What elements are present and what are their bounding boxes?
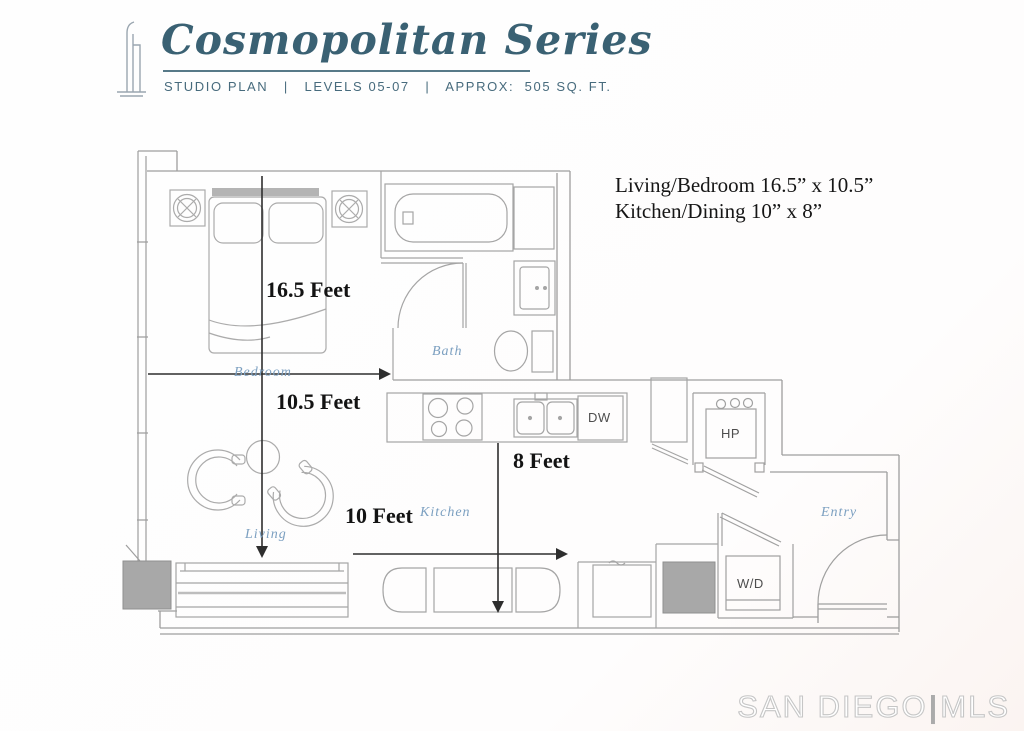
dim-kitchen-depth: 8 Feet: [513, 448, 570, 474]
dim-kitchen-width: 10 Feet: [345, 503, 413, 529]
column-left: [123, 561, 171, 609]
building-icon: [117, 22, 146, 96]
armchair-left: [188, 450, 245, 510]
column-right: [663, 562, 715, 613]
window-wall: [126, 151, 148, 561]
room-label-bedroom: Bedroom: [234, 365, 292, 381]
room-label-entry: Entry: [821, 505, 857, 521]
bath-wall-door-header: [381, 258, 463, 263]
plan-subtitle: STUDIO PLAN | LEVELS 05-07 | APPROX: 505…: [164, 79, 612, 94]
bathtub: [385, 184, 513, 251]
room-label-bath: Bath: [432, 344, 462, 360]
living-furniture: [188, 441, 346, 539]
bathroom: [381, 171, 555, 380]
brand-underline: [163, 70, 530, 72]
watermark-org: MLS: [940, 689, 1010, 724]
arrow-kitchen-width: [353, 548, 568, 560]
bath-closet: [514, 187, 554, 249]
columns: [123, 561, 715, 613]
wd-closet: [718, 513, 793, 618]
watermark-city: SAN DIEGO: [737, 689, 927, 724]
nightstand-right: [332, 191, 367, 227]
nightstand-left: [170, 190, 205, 226]
round-table: [247, 441, 280, 474]
stove: [423, 394, 482, 440]
dim-bedroom-width: 10.5 Feet: [276, 389, 360, 415]
label-washer-dryer: W/D: [737, 576, 764, 591]
kitchen-sink: [514, 393, 577, 437]
label-heat-pump: HP: [721, 426, 740, 441]
bedroom-furniture: [170, 188, 367, 353]
note-living-bedroom: Living/Bedroom 16.5” x 10.5”: [615, 172, 873, 198]
note-kitchen-dining: Kitchen/Dining 10” x 8”: [615, 198, 822, 224]
bed: [209, 188, 326, 353]
hp-closet: [693, 393, 765, 497]
bath-vanity-sink: [514, 261, 555, 315]
toilet: [495, 331, 554, 372]
watermark-divider-icon: |: [928, 689, 941, 724]
sofa-sections: [383, 568, 560, 612]
room-label-living: Living: [245, 527, 287, 543]
dim-bedroom-length: 16.5 Feet: [266, 277, 350, 303]
brand-title: Cosmopolitan Series: [161, 16, 653, 64]
label-dishwasher: DW: [588, 410, 611, 425]
window-console: [176, 563, 348, 617]
arrow-kitchen-depth: [492, 443, 504, 613]
floor-plan-page: Cosmopolitan Series STUDIO PLAN | LEVELS…: [0, 0, 1024, 731]
bath-door: [398, 263, 466, 328]
room-label-kitchen: Kitchen: [420, 505, 471, 521]
mls-watermark: SAN DIEGO|MLS: [737, 689, 1010, 725]
entry-door: [818, 535, 887, 609]
fridge: [651, 378, 688, 464]
floor-plan-drawing: [0, 0, 1024, 731]
